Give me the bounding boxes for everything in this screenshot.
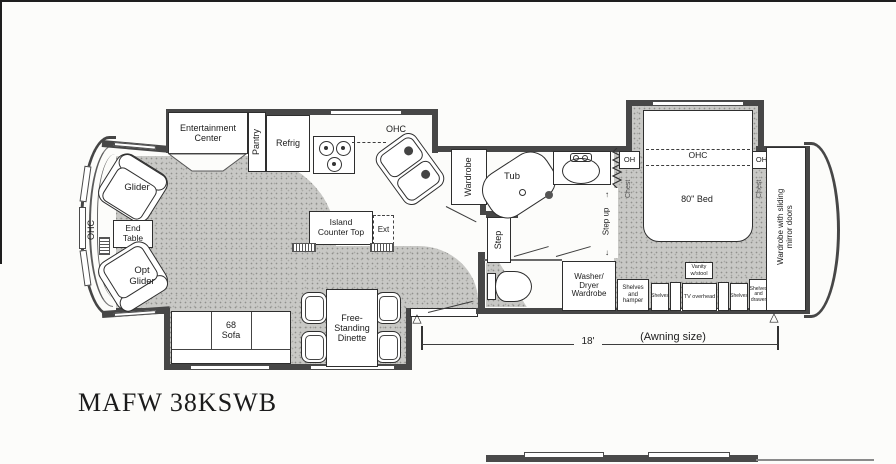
awning-length: 18' xyxy=(576,336,600,348)
cabinet-spacer xyxy=(670,282,681,311)
stove-burner xyxy=(327,157,342,172)
oh-cabinet-left: OH xyxy=(619,151,640,169)
model-number: MAFW 38KSWB xyxy=(78,388,277,418)
sofa-label: 68 Sofa xyxy=(201,320,261,341)
island-counter: Island Counter Top xyxy=(309,211,373,245)
front-ohc-label: OHC xyxy=(87,210,97,250)
awning-dimension-line-b xyxy=(602,344,778,345)
pantry-label: Pantry xyxy=(252,117,262,167)
entertainment-center: Entertainment Center xyxy=(168,112,248,154)
toilet-room-left-wall xyxy=(478,252,485,312)
awning-size-label: (Awning size) xyxy=(618,331,728,344)
dinette-chair xyxy=(375,331,401,363)
bath-sink-counter xyxy=(553,151,611,185)
refrigerator: Refrig xyxy=(266,115,310,172)
stove-burner xyxy=(319,141,334,156)
toilet-door-swing-1 xyxy=(514,246,549,257)
cabinet-spacer xyxy=(718,282,729,311)
dinette-chair xyxy=(301,292,327,324)
bed-slide-window xyxy=(652,101,744,106)
washer-dryer-wardrobe: Washer/ Dryer Wardrobe xyxy=(562,261,616,311)
floor-register-1 xyxy=(292,243,316,252)
rear-wardrobe-label: Wardrobe with sliding mirror doors xyxy=(777,172,795,282)
cabinet-shelves-b: Shelves xyxy=(730,283,748,311)
floor-register-2 xyxy=(370,243,394,252)
bed-ohc-label: OHC xyxy=(668,151,728,161)
awning-marker-right: △ xyxy=(766,311,782,325)
bed-slide-left-wall xyxy=(626,100,632,152)
tub-label: Tub xyxy=(492,172,532,183)
awning-marker-left: △ xyxy=(409,312,425,326)
dinette-chair xyxy=(375,292,401,324)
kitchen-slide-window xyxy=(330,110,402,115)
cabinet-shelves-hamper: Shelves and hamper xyxy=(617,279,649,311)
vanity-stool: Vanity w/stool xyxy=(685,262,713,279)
rv-floorplan-page: Glider End Table Opt Glider OHC Entertai… xyxy=(0,0,896,464)
step-up-label: Step up xyxy=(603,196,612,246)
awning-dimension-line-a xyxy=(422,344,574,345)
bath-fixture-knob xyxy=(545,191,553,199)
stove-burner xyxy=(336,141,351,156)
awning-tick-right xyxy=(777,326,779,350)
tub-drain xyxy=(519,189,526,196)
bed-slide-right-wall xyxy=(758,100,764,152)
step-up-arrow-top: ↑ xyxy=(602,190,612,199)
cabinet-shelves-a: Shelves xyxy=(651,283,669,311)
bed-ohc-dashline-bottom xyxy=(646,165,750,166)
opt-glider-label: Opt Glider xyxy=(112,266,172,288)
next-plan-window-1 xyxy=(524,452,604,458)
range-stove xyxy=(313,136,355,174)
step-up-arrow-bottom: ↓ xyxy=(602,248,612,257)
dash-vent xyxy=(99,237,110,255)
sofa-slide-window-1 xyxy=(190,365,270,370)
galley-step-label: Step xyxy=(494,218,504,262)
cabinet-tv-overhead: TV overhead xyxy=(682,283,717,311)
toilet-door-swing-2 xyxy=(556,246,591,257)
toilet-bowl xyxy=(495,271,532,302)
dinette-table: Free- Standing Dinette xyxy=(326,289,378,367)
tv-front-shape xyxy=(166,152,250,176)
counter-edge-line xyxy=(446,206,477,222)
page-left-edge xyxy=(0,2,2,264)
kitchen-ohc-dashline xyxy=(352,142,386,143)
page-top-edge xyxy=(0,0,896,2)
bed xyxy=(643,110,753,242)
counter-extension: Ext xyxy=(373,215,394,245)
awning-tick-left xyxy=(421,326,423,350)
chest-right-label: Chest xyxy=(756,172,764,206)
glider-label: Glider xyxy=(107,183,167,194)
next-plan-wall-line xyxy=(756,459,874,461)
dinette-chair xyxy=(301,331,327,363)
next-plan-window-2 xyxy=(648,452,730,458)
front-window-2 xyxy=(79,207,86,249)
bed-size-label: 80" Bed xyxy=(667,194,727,204)
chest-left-label: Chest xyxy=(625,172,633,206)
galley-wardrobe-label: Wardrobe xyxy=(464,147,474,207)
sofa-slide-left-wall xyxy=(164,308,170,370)
